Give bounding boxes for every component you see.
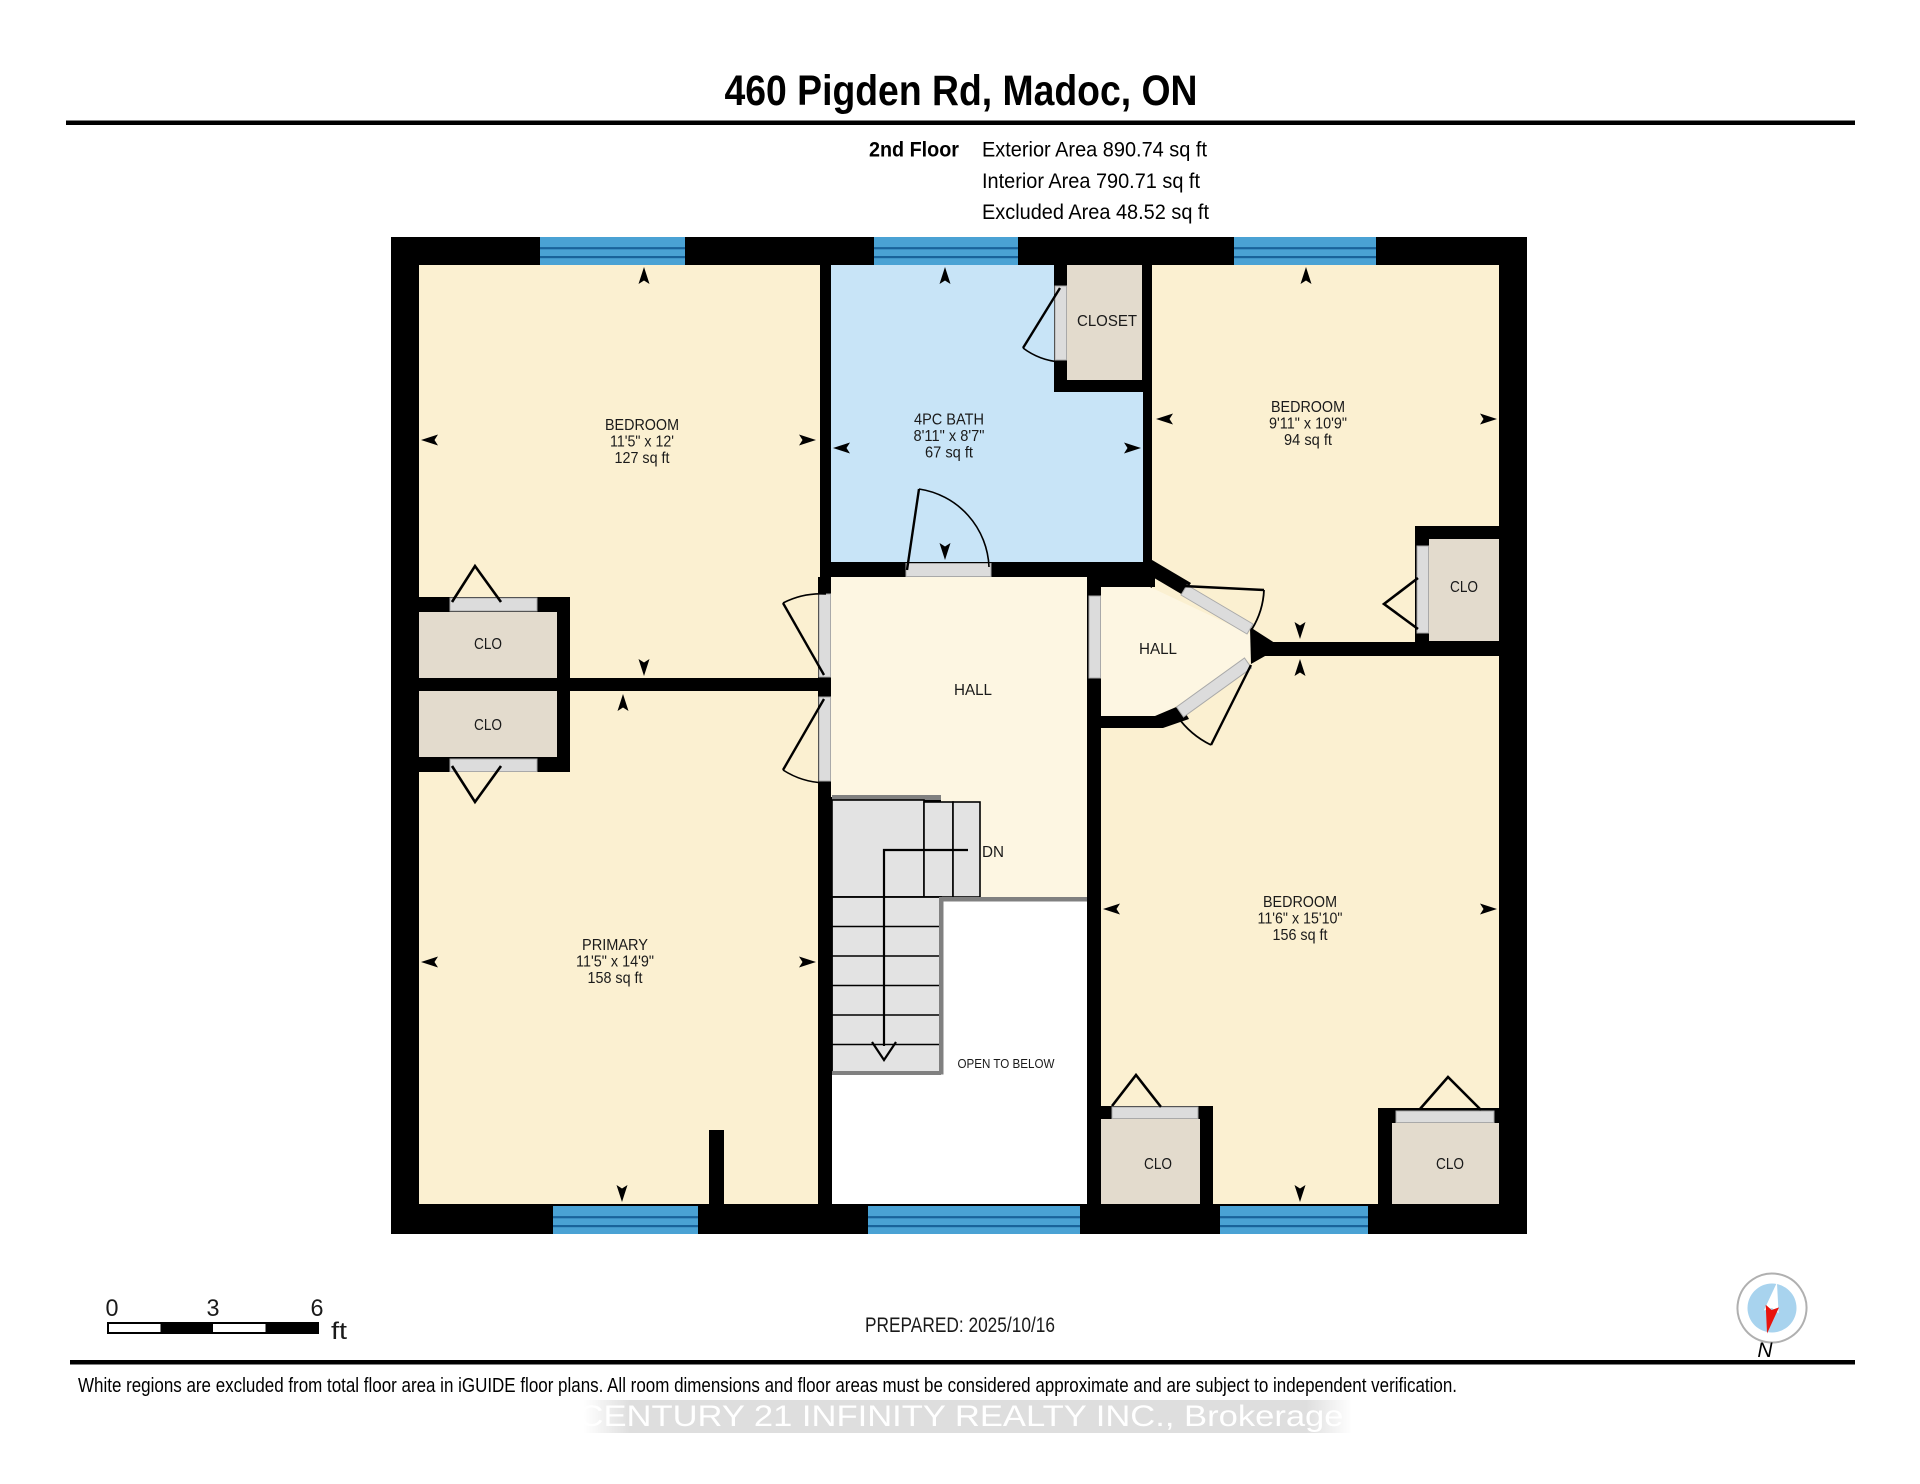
svg-text:94 sq ft: 94 sq ft	[1284, 432, 1333, 449]
svg-text:N: N	[1757, 1339, 1773, 1362]
svg-text:2nd Floor: 2nd Floor	[869, 138, 960, 162]
svg-text:Exterior Area 890.74 sq ft: Exterior Area 890.74 sq ft	[982, 138, 1207, 162]
svg-text:PRIMARY: PRIMARY	[582, 937, 648, 954]
svg-text:CLO: CLO	[474, 636, 502, 653]
svg-text:11'6" x 15'10": 11'6" x 15'10"	[1258, 911, 1343, 928]
svg-text:8'11" x 8'7": 8'11" x 8'7"	[914, 428, 985, 445]
svg-text:4PC BATH: 4PC BATH	[914, 412, 984, 429]
svg-text:HALL: HALL	[954, 682, 992, 699]
svg-text:BEDROOM: BEDROOM	[1271, 399, 1345, 416]
svg-text:11'5" x 12': 11'5" x 12'	[610, 434, 674, 451]
svg-text:ft: ft	[331, 1318, 347, 1345]
svg-text:HALL: HALL	[1139, 641, 1177, 658]
svg-text:BEDROOM: BEDROOM	[605, 417, 679, 434]
svg-text:DN: DN	[982, 844, 1004, 861]
svg-text:CLO: CLO	[474, 717, 502, 734]
svg-text:156 sq ft: 156 sq ft	[1273, 927, 1329, 944]
svg-text:CLOSET: CLOSET	[1077, 313, 1138, 330]
svg-text:Interior Area 790.71 sq ft: Interior Area 790.71 sq ft	[982, 169, 1200, 193]
svg-text:CLO: CLO	[1144, 1156, 1172, 1173]
svg-text:11'5" x 14'9": 11'5" x 14'9"	[576, 954, 654, 971]
svg-text:3: 3	[207, 1295, 220, 1322]
svg-text:OPEN TO BELOW: OPEN TO BELOW	[958, 1057, 1055, 1071]
svg-text:9'11" x 10'9": 9'11" x 10'9"	[1269, 416, 1347, 433]
svg-text:460 Pigden Rd, Madoc, ON: 460 Pigden Rd, Madoc, ON	[725, 67, 1198, 115]
svg-text:0: 0	[106, 1295, 119, 1322]
svg-text:BEDROOM: BEDROOM	[1263, 894, 1337, 911]
svg-text:CLO: CLO	[1450, 579, 1478, 596]
svg-text:158 sq ft: 158 sq ft	[588, 970, 644, 987]
svg-text:CENTURY 21 INFINITY REALTY INC: CENTURY 21 INFINITY REALTY INC., Brokera…	[579, 1400, 1344, 1433]
svg-text:PREPARED: 2025/10/16: PREPARED: 2025/10/16	[865, 1314, 1055, 1337]
svg-text:67 sq ft: 67 sq ft	[925, 445, 974, 462]
svg-text:CLO: CLO	[1436, 1156, 1464, 1173]
svg-text:White regions are excluded fro: White regions are excluded from total fl…	[78, 1375, 1457, 1397]
svg-text:127 sq ft: 127 sq ft	[615, 450, 671, 467]
svg-text:Excluded Area 48.52 sq ft: Excluded Area 48.52 sq ft	[982, 200, 1209, 224]
svg-text:6: 6	[311, 1295, 324, 1322]
